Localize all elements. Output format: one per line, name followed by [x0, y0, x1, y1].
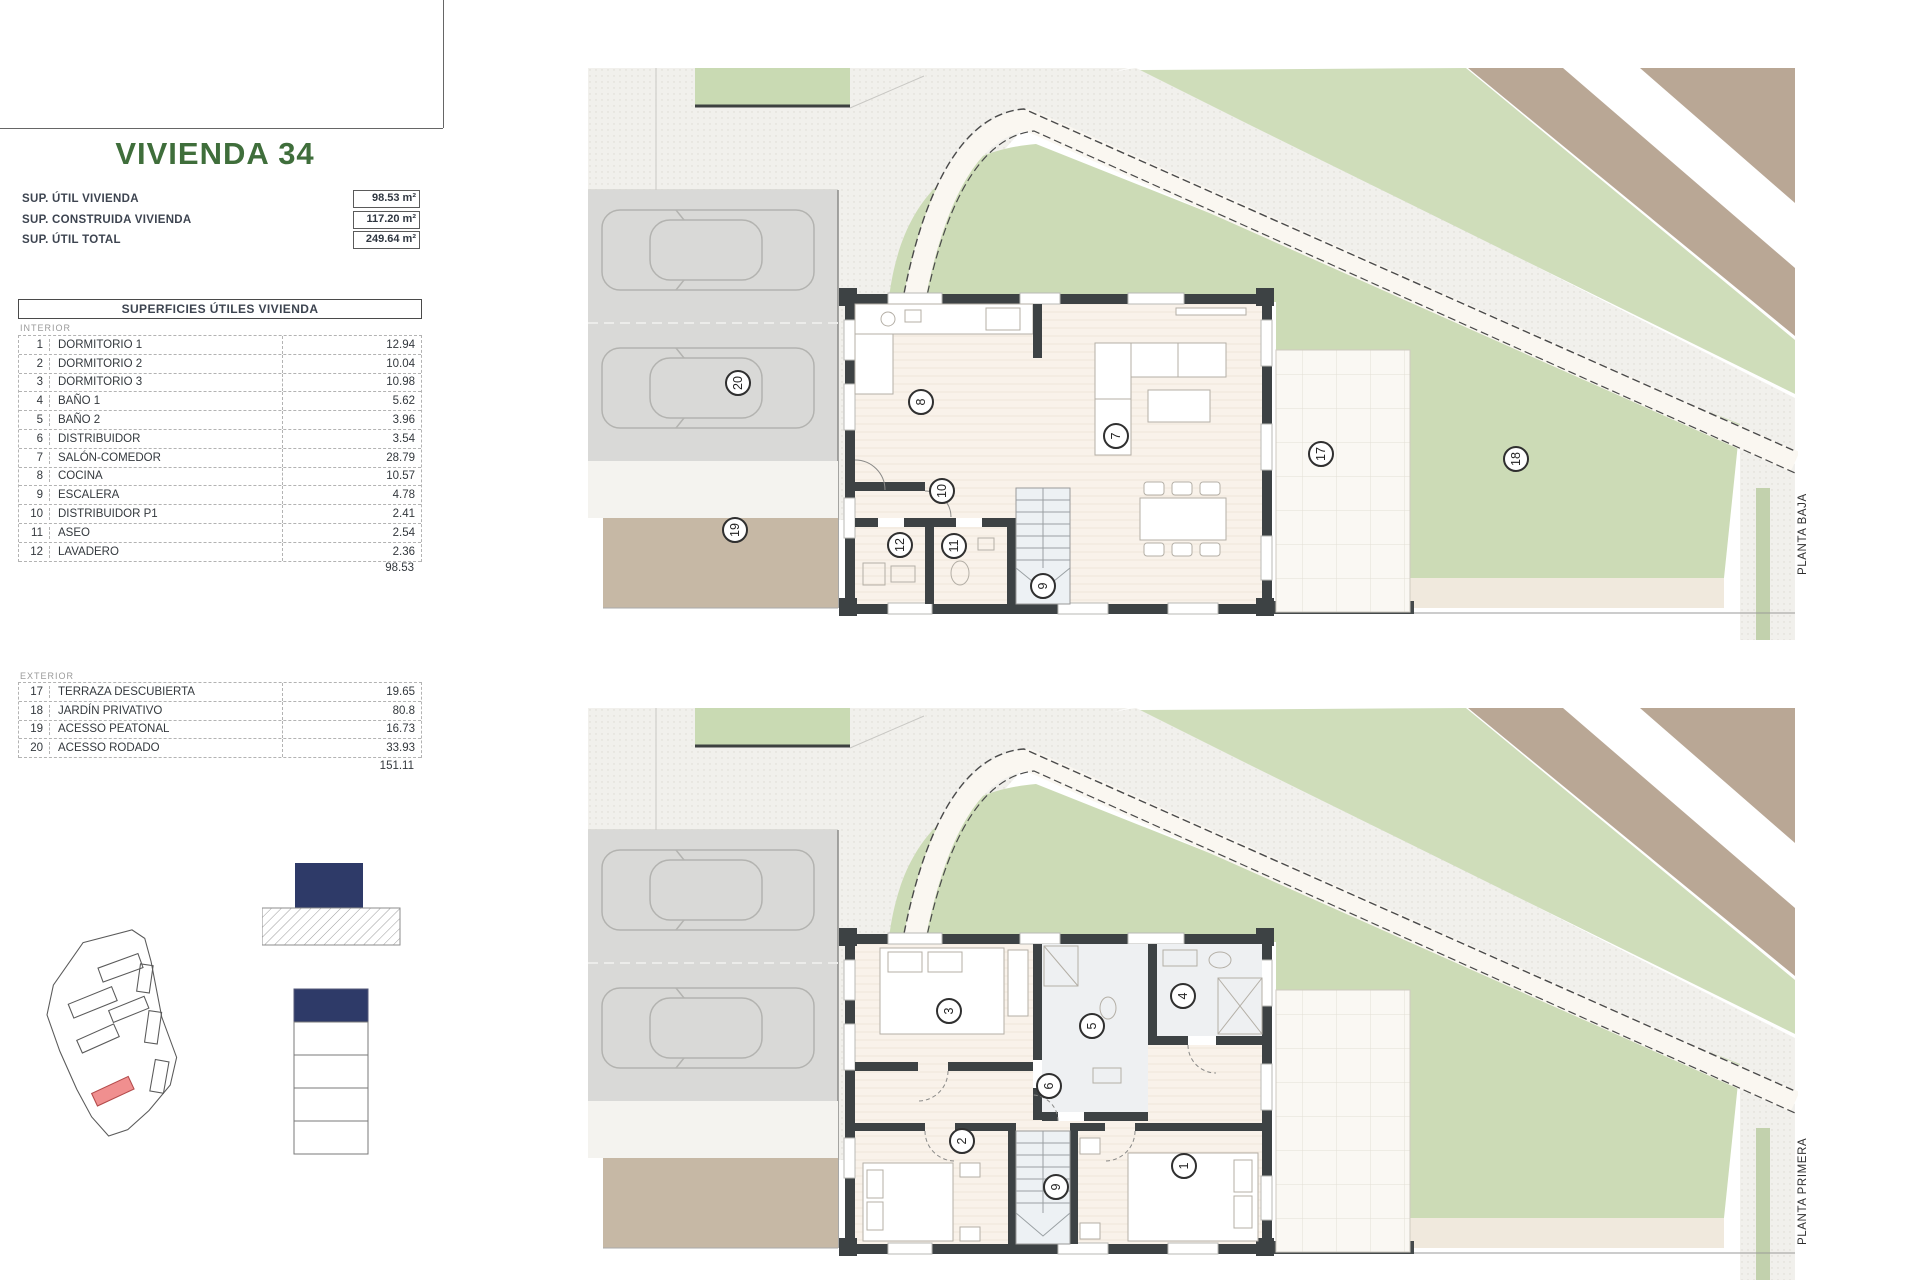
row-value: 4.78	[283, 489, 421, 501]
summary-value: 249.64 m²	[353, 231, 420, 249]
row-name: COCINA	[50, 468, 283, 486]
summary-row: SUP. ÚTIL VIVIENDA 98.53 m²	[22, 189, 420, 210]
plan-planta-baja: 87101211917181920	[588, 68, 1798, 640]
room-marker: 1	[1172, 1154, 1196, 1178]
room-marker-number: 7	[1109, 432, 1123, 439]
elevation-key-diagram	[262, 858, 422, 950]
row-value: 10.04	[283, 358, 421, 370]
interior-table: 1 DORMITORIO 1 12.94 2 DORMITORIO 2 10.0…	[18, 335, 422, 562]
summary-row: SUP. CONSTRUIDA VIVIENDA 117.20 m²	[22, 210, 420, 231]
row-number: 12	[19, 546, 50, 558]
row-number: 8	[19, 470, 50, 482]
room-marker-number: 9	[1036, 582, 1050, 589]
row-number: 10	[19, 508, 50, 520]
selected-floor-block	[295, 863, 363, 908]
row-number: 11	[19, 527, 50, 539]
room-marker: 8	[909, 390, 933, 414]
row-number: 20	[19, 742, 50, 754]
exterior-total: 151.11	[18, 760, 414, 772]
summary-value: 98.53 m²	[353, 190, 420, 208]
room-marker-number: 20	[731, 376, 745, 390]
row-name: BAÑO 2	[50, 411, 283, 429]
room-marker: 17	[1309, 442, 1333, 466]
row-number: 18	[19, 705, 50, 717]
room-marker-number: 5	[1085, 1022, 1099, 1029]
room-marker-number: 11	[947, 539, 961, 552]
table-row: 17 TERRAZA DESCUBIERTA 19.65	[19, 683, 421, 702]
row-value: 3.96	[283, 414, 421, 426]
room-marker-number: 3	[942, 1007, 956, 1014]
row-number: 9	[19, 489, 50, 501]
floor-row-selected	[294, 989, 368, 1022]
row-value: 80.8	[283, 705, 421, 717]
row-value: 10.98	[283, 376, 421, 388]
room-marker-number: 19	[728, 523, 742, 537]
table-row: 8 COCINA 10.57	[19, 468, 421, 487]
table-row: 20 ACESSO RODADO 33.93	[19, 739, 421, 758]
room-marker: 11	[942, 534, 966, 558]
row-number: 4	[19, 395, 50, 407]
label-planta-primera: PLANTA PRIMERA	[1797, 1138, 1809, 1245]
room-marker-number: 10	[935, 484, 949, 498]
table-row: 18 JARDÍN PRIVATIVO 80.8	[19, 702, 421, 721]
room-marker: 19	[723, 518, 747, 542]
row-name: ESCALERA	[50, 486, 283, 504]
floor-row	[294, 1088, 368, 1121]
frame-line-vertical	[443, 0, 444, 128]
exterior-section-label: EXTERIOR	[20, 671, 74, 681]
room-marker: 20	[726, 371, 750, 395]
row-value: 16.73	[283, 723, 421, 735]
table-row: 1 DORMITORIO 1 12.94	[19, 336, 421, 355]
table-row: 12 LAVADERO 2.36	[19, 543, 421, 562]
row-name: ACESSO PEATONAL	[50, 721, 283, 739]
table-row: 3 DORMITORIO 3 10.98	[19, 374, 421, 393]
floor-row	[294, 1022, 368, 1055]
row-number: 7	[19, 452, 50, 464]
room-marker-number: 2	[955, 1137, 969, 1144]
table-row: 4 BAÑO 1 5.62	[19, 392, 421, 411]
room-marker: 4	[1171, 984, 1195, 1008]
row-number: 1	[19, 339, 50, 351]
room-marker: 9	[1044, 1175, 1068, 1199]
room-marker-number: 9	[1049, 1183, 1063, 1190]
room-marker: 6	[1037, 1074, 1061, 1098]
table-row: 6 DISTRIBUIDOR 3.54	[19, 430, 421, 449]
row-value: 33.93	[283, 742, 421, 754]
room-marker: 7	[1104, 424, 1128, 448]
interior-section-label: INTERIOR	[20, 323, 71, 333]
room-marker-number: 4	[1176, 992, 1190, 999]
label-planta-baja: PLANTA BAJA	[1797, 493, 1809, 575]
floor-row	[294, 1055, 368, 1088]
row-value: 2.36	[283, 546, 421, 558]
summary-label: SUP. ÚTIL VIVIENDA	[22, 193, 353, 205]
room-marker: 10	[930, 479, 954, 503]
site-outline	[47, 930, 177, 1136]
row-value: 3.54	[283, 433, 421, 445]
exterior-table: 17 TERRAZA DESCUBIERTA 19.65 18 JARDÍN P…	[18, 682, 422, 758]
floor-stack-key	[293, 988, 369, 1156]
row-name: DISTRIBUIDOR	[50, 430, 283, 448]
summary-block: SUP. ÚTIL VIVIENDA 98.53 m² SUP. CONSTRU…	[22, 189, 420, 251]
room-marker: 2	[950, 1129, 974, 1153]
room-marker: 18	[1504, 447, 1528, 471]
row-value: 28.79	[283, 452, 421, 464]
row-name: JARDÍN PRIVATIVO	[50, 702, 283, 720]
row-number: 5	[19, 414, 50, 426]
row-value: 5.62	[283, 395, 421, 407]
row-number: 6	[19, 433, 50, 445]
row-value: 12.94	[283, 339, 421, 351]
room-marker: 3	[937, 999, 961, 1023]
row-value: 10.57	[283, 470, 421, 482]
row-name: DORMITORIO 1	[50, 336, 283, 354]
row-name: DORMITORIO 3	[50, 374, 283, 392]
interior-total: 98.53	[18, 562, 414, 574]
table-header: SUPERFICIES ÚTILES VIVIENDA	[18, 299, 422, 319]
plan-planta-primera: 3546291	[588, 708, 1798, 1280]
row-name: DORMITORIO 2	[50, 355, 283, 373]
row-name: ASEO	[50, 524, 283, 542]
floor-row	[294, 1121, 368, 1154]
summary-label: SUP. ÚTIL TOTAL	[22, 234, 353, 246]
page-title: VIVIENDA 34	[15, 136, 415, 172]
row-number: 2	[19, 358, 50, 370]
room-marker-number: 8	[914, 398, 928, 405]
row-name: BAÑO 1	[50, 392, 283, 410]
room-marker-number: 12	[893, 538, 907, 552]
room-marker: 5	[1080, 1014, 1104, 1038]
frame-line-horizontal	[0, 128, 443, 129]
plan-sheet: VIVIENDA 34 SUP. ÚTIL VIVIENDA 98.53 m² …	[0, 0, 1920, 1280]
summary-label: SUP. CONSTRUIDA VIVIENDA	[22, 214, 353, 226]
table-row: 19 ACESSO PEATONAL 16.73	[19, 721, 421, 740]
row-name: LAVADERO	[50, 543, 283, 561]
room-marker-number: 6	[1042, 1082, 1056, 1089]
row-number: 17	[19, 686, 50, 698]
row-number: 19	[19, 723, 50, 735]
room-marker: 9	[1031, 574, 1055, 598]
table-row: 10 DISTRIBUIDOR P1 2.41	[19, 505, 421, 524]
row-number: 3	[19, 376, 50, 388]
ground-hatch	[262, 908, 400, 945]
room-marker-number: 1	[1177, 1162, 1191, 1169]
row-name: SALÓN-COMEDOR	[50, 449, 283, 467]
summary-row: SUP. ÚTIL TOTAL 249.64 m²	[22, 230, 420, 251]
table-row: 7 SALÓN-COMEDOR 28.79	[19, 449, 421, 468]
table-row: 2 DORMITORIO 2 10.04	[19, 355, 421, 374]
row-name: ACESSO RODADO	[50, 739, 283, 757]
row-value: 2.41	[283, 508, 421, 520]
table-row: 9 ESCALERA 4.78	[19, 486, 421, 505]
table-row: 11 ASEO 2.54	[19, 524, 421, 543]
summary-value: 117.20 m²	[353, 211, 420, 229]
room-marker-number: 18	[1509, 452, 1523, 466]
row-value: 19.65	[283, 686, 421, 698]
site-minimap	[30, 925, 200, 1160]
row-name: DISTRIBUIDOR P1	[50, 505, 283, 523]
row-name: TERRAZA DESCUBIERTA	[50, 683, 283, 701]
room-marker-number: 17	[1314, 447, 1328, 461]
row-value: 2.54	[283, 527, 421, 539]
room-marker: 12	[888, 533, 912, 557]
table-row: 5 BAÑO 2 3.96	[19, 411, 421, 430]
